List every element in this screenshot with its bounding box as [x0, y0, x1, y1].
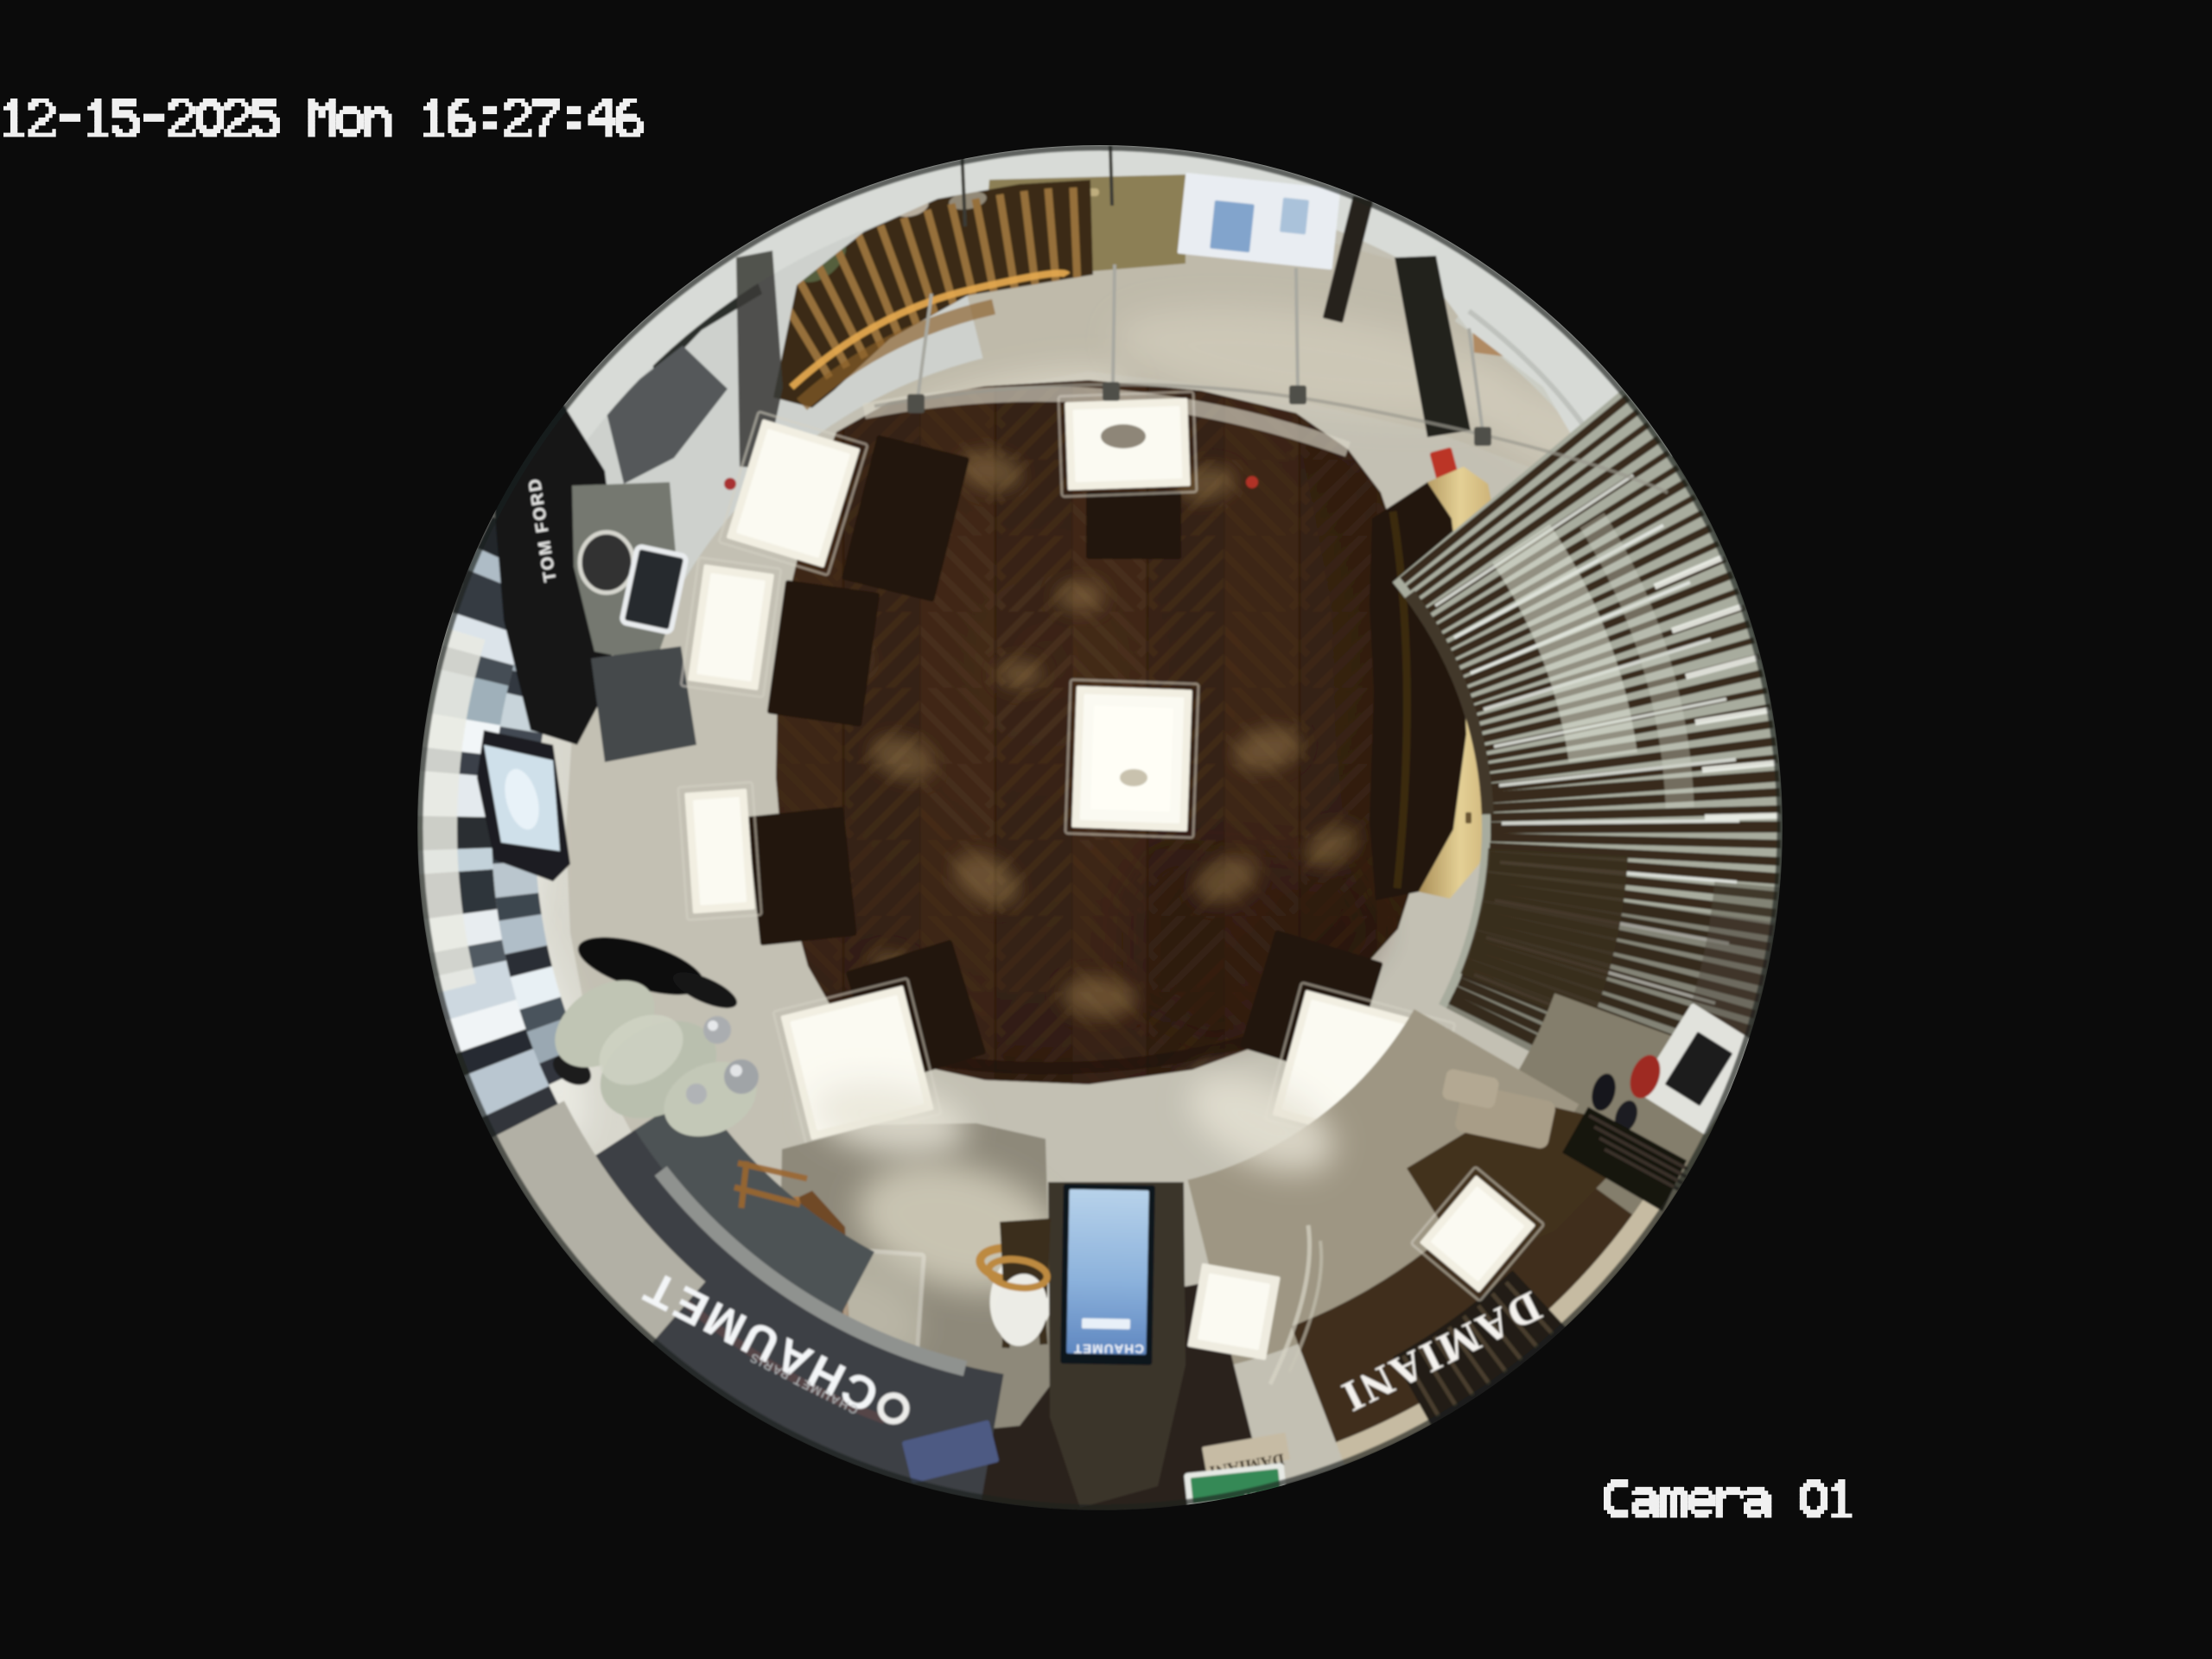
- svg-text:CHAUMET: CHAUMET: [1073, 1341, 1144, 1356]
